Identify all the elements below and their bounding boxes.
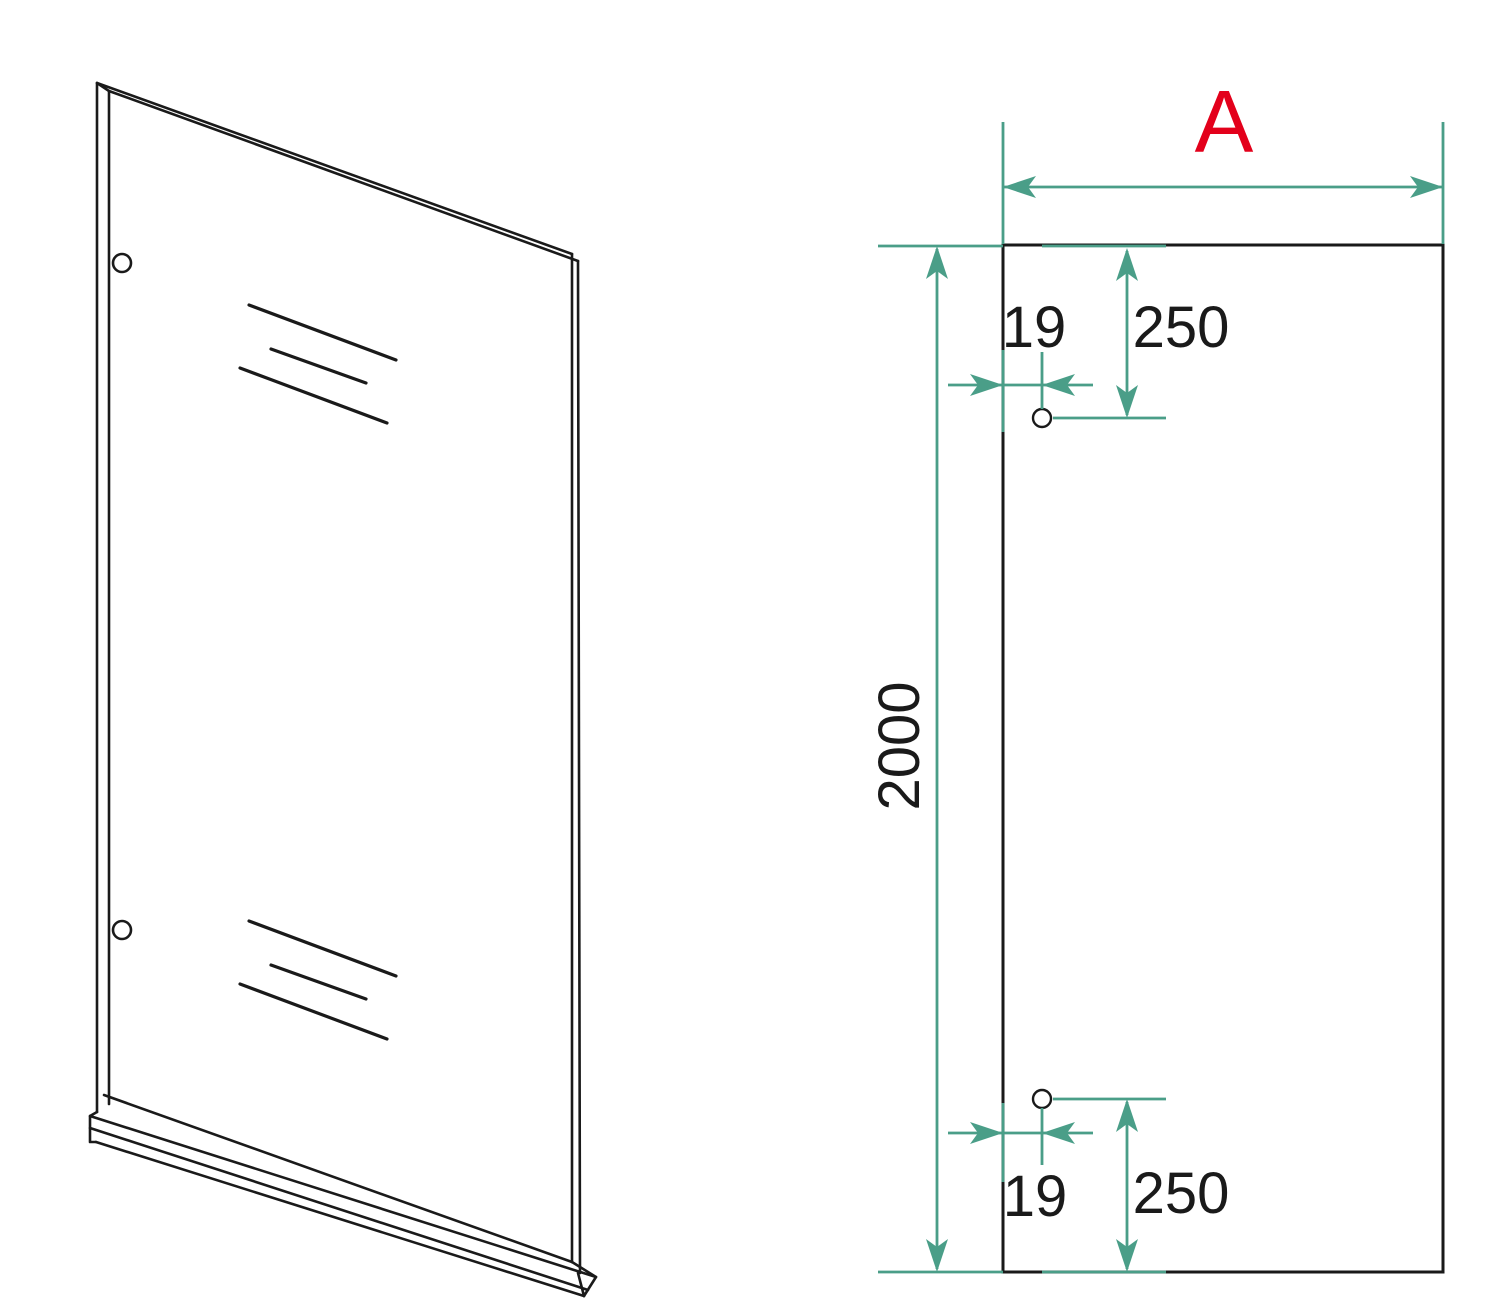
height-label: 2000 — [867, 681, 932, 810]
hole-top-offset-x-label: 19 — [1002, 295, 1067, 360]
width-label: A — [1195, 72, 1254, 171]
reflection-lines-bottom — [240, 921, 396, 1039]
technical-drawing-canvas: 2000 19 250 19 250 A — [0, 0, 1509, 1316]
glass-panel-outline — [97, 83, 580, 1273]
reflection-line — [271, 965, 366, 999]
reflection-line — [240, 984, 387, 1039]
hole-bottom-offset-x-label: 19 — [1003, 1164, 1068, 1229]
hole-top-offset-y-label: 250 — [1133, 295, 1230, 360]
reflection-line — [249, 921, 396, 976]
panel-top-edge-inner — [109, 91, 578, 261]
reflection-line — [271, 349, 366, 383]
panel-top-edge-outer — [97, 83, 572, 254]
bottom-seal-rail — [90, 1112, 596, 1296]
panel-bottom-edge — [104, 1095, 572, 1262]
rail-top-line — [90, 1116, 596, 1277]
reflection-line — [240, 368, 387, 423]
rail-right-end — [578, 1273, 584, 1296]
reflection-line — [249, 305, 396, 360]
perspective-view — [90, 83, 596, 1296]
rail-mid-line — [90, 1128, 588, 1290]
mounting-hole-bottom-perspective — [113, 921, 131, 939]
mounting-hole-top-perspective — [113, 254, 131, 272]
panel-outline-front — [1003, 245, 1443, 1272]
rail-bottom-line — [96, 1142, 584, 1296]
mounting-hole-bottom-front — [1033, 1090, 1051, 1108]
dimension-labels: 2000 19 250 19 250 — [867, 295, 1229, 1229]
reflection-lines-top — [240, 305, 396, 423]
hole-bottom-offset-y-label: 250 — [1133, 1161, 1230, 1226]
panel-right-edge-back — [578, 261, 580, 1273]
mounting-hole-top-front — [1033, 409, 1051, 427]
front-view — [1003, 245, 1443, 1272]
